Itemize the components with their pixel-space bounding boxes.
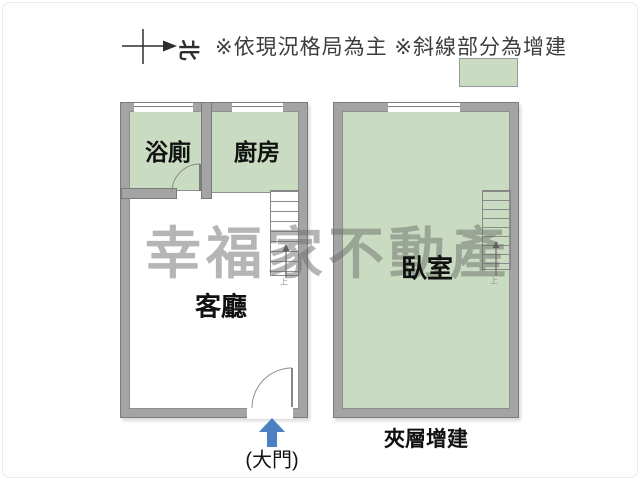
- plan-notice: ※依現況格局為主 ※斜線部分為增建: [215, 31, 567, 61]
- bathroom-kitchen-wall: [201, 102, 212, 199]
- bedroom-window: [388, 102, 460, 112]
- mezzanine-label: 夾層增建: [384, 423, 468, 453]
- stair-up-label-left: 上: [280, 277, 288, 288]
- main-door-label: (大門): [245, 444, 298, 473]
- addition-legend-swatch: [459, 58, 518, 87]
- living-room-label: 客廳: [195, 287, 247, 324]
- stair-up-label-right: 上: [490, 276, 498, 287]
- agency-watermark: 幸福家不動產: [145, 209, 511, 290]
- bathroom-label: 浴廁: [145, 133, 191, 167]
- floorplan-canvas: 北 ※依現況格局為主 ※斜線部分為增建: [0, 0, 640, 480]
- bedroom-label: 臥室: [401, 249, 453, 286]
- main-door-opening: [247, 406, 293, 419]
- bathroom-bottom-wall: [121, 188, 177, 199]
- kitchen-label: 廚房: [234, 133, 280, 167]
- kitchen-window: [232, 102, 283, 112]
- compass-north-label: 北: [175, 40, 205, 61]
- bathroom-window: [134, 102, 193, 112]
